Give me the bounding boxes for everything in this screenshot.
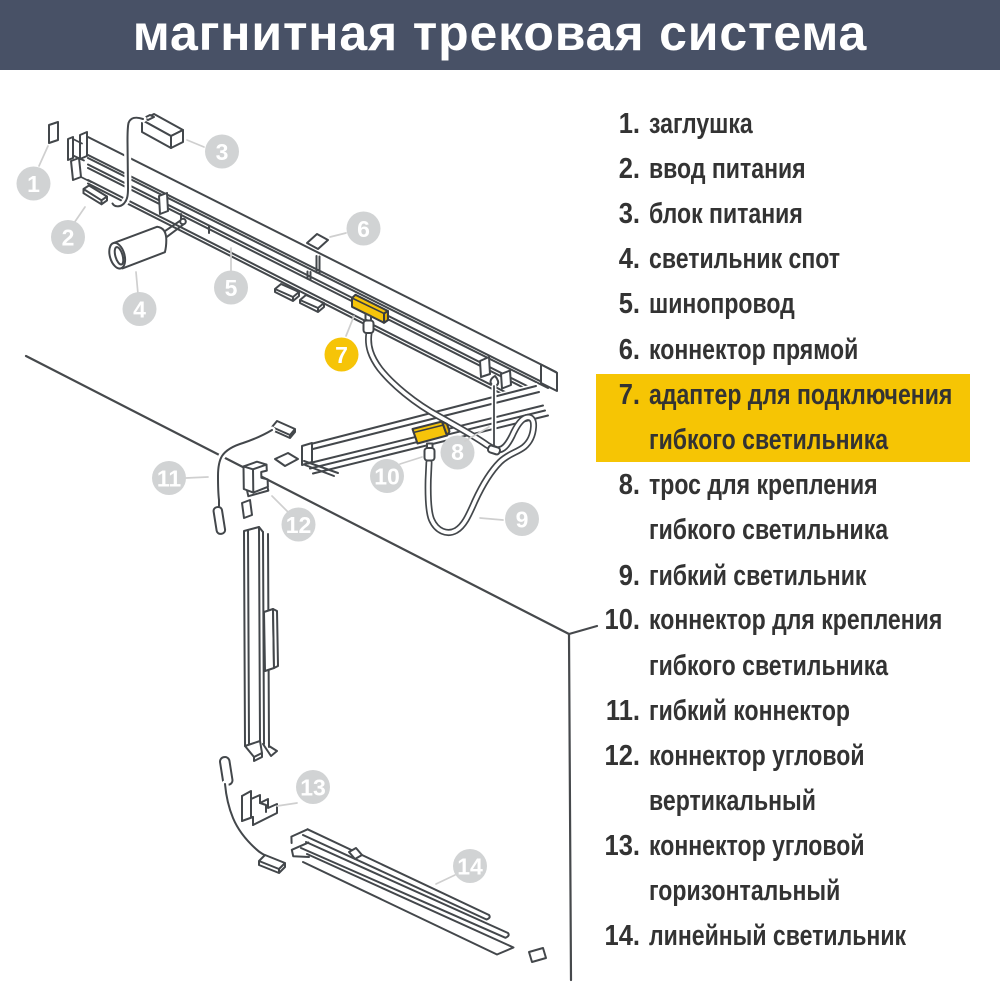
svg-text:5: 5 [225,275,238,301]
svg-text:1: 1 [27,171,40,197]
svg-text:3: 3 [216,139,229,165]
svg-text:11: 11 [157,466,182,492]
svg-text:8: 8 [451,439,464,465]
svg-text:2: 2 [62,225,75,251]
svg-text:9: 9 [516,507,529,533]
svg-text:10: 10 [374,464,400,490]
svg-text:12: 12 [286,512,312,538]
svg-text:7: 7 [335,342,348,368]
svg-text:6: 6 [357,216,370,242]
svg-text:14: 14 [457,854,483,880]
svg-text:4: 4 [133,297,146,323]
svg-text:13: 13 [300,775,326,801]
